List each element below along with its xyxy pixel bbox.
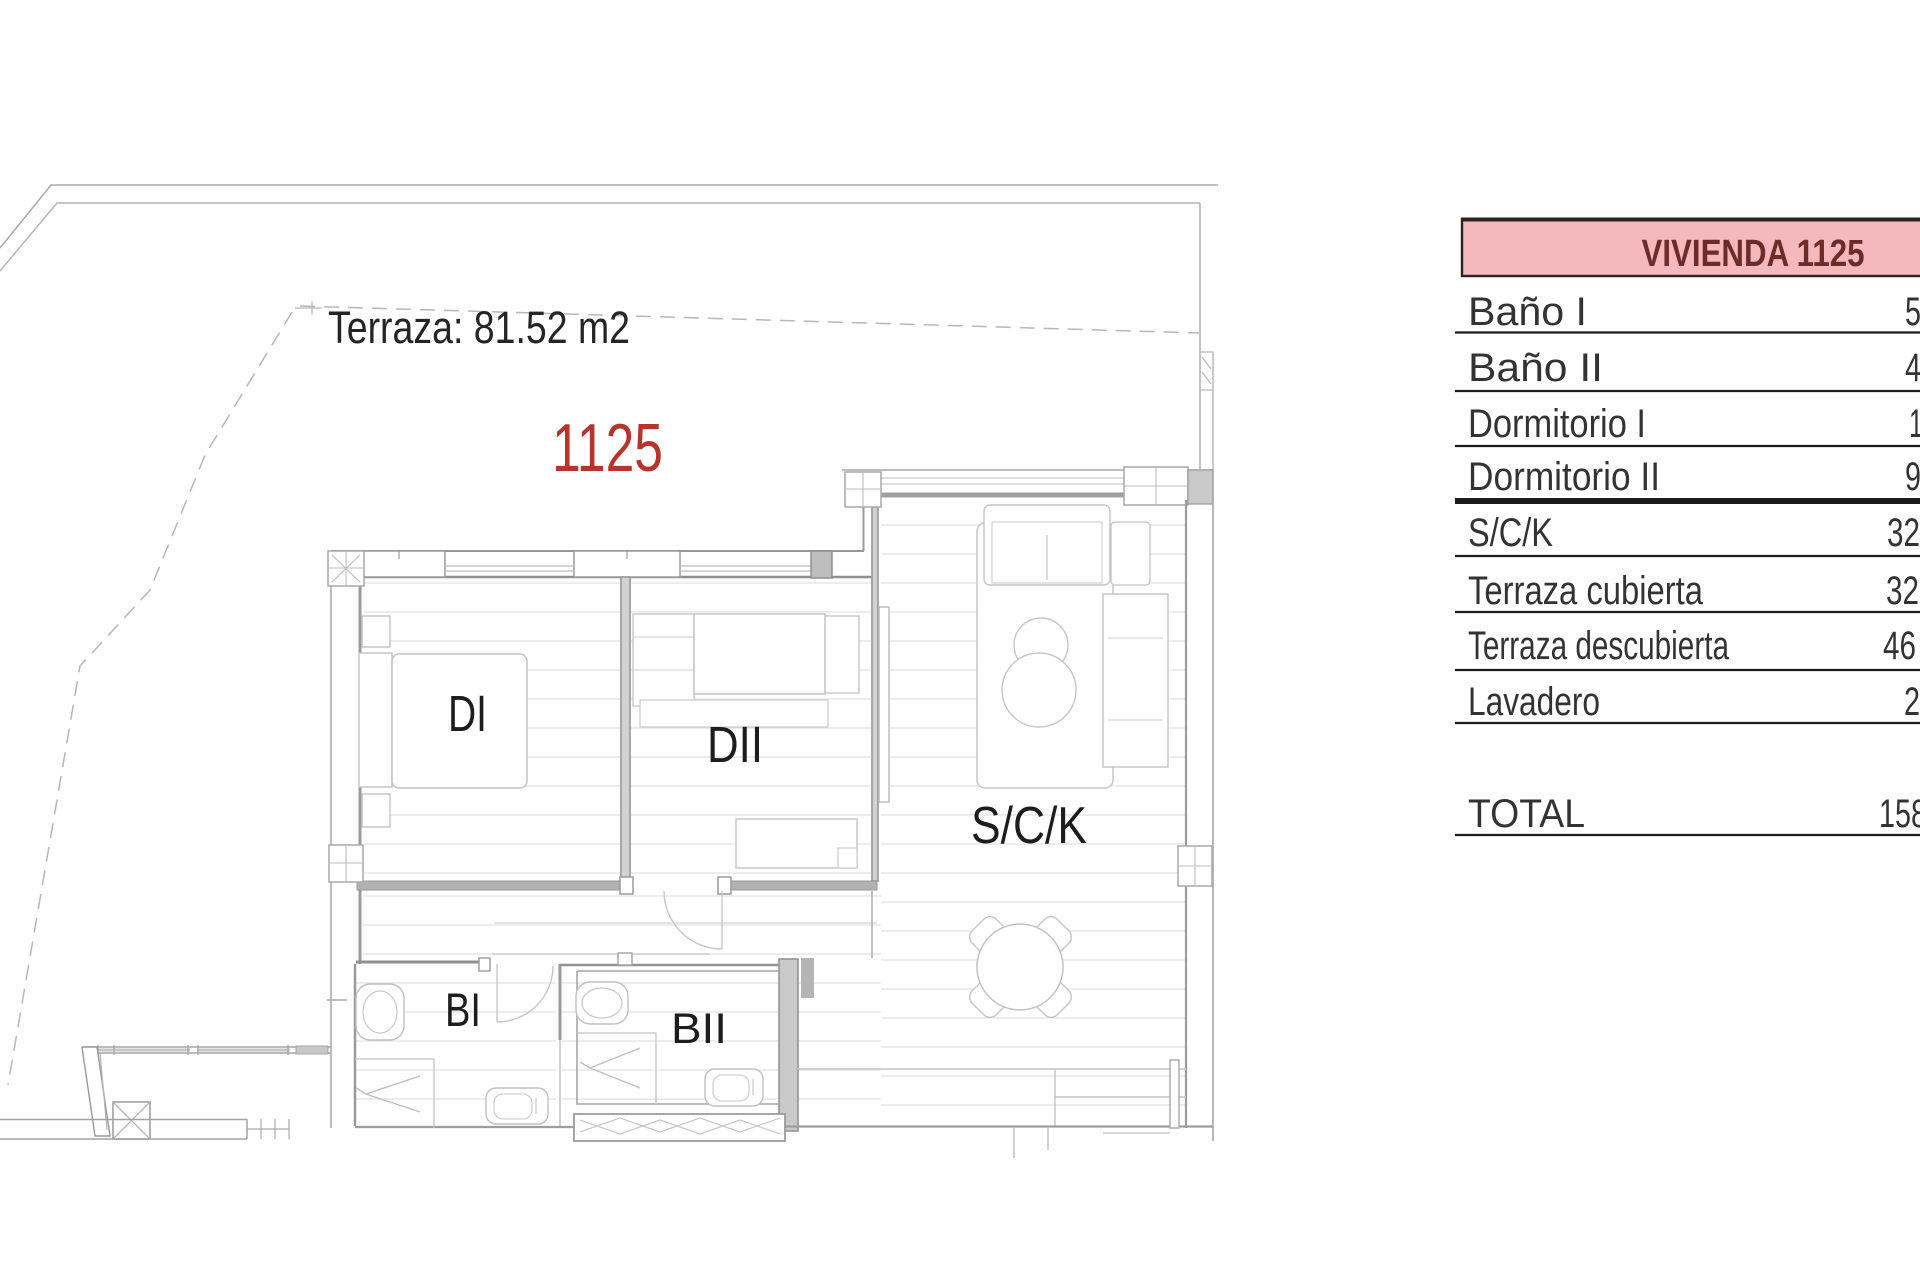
svg-text:DI: DI — [448, 685, 487, 742]
svg-text:9: 9 — [1905, 455, 1920, 499]
svg-text:1: 1 — [1909, 402, 1920, 446]
svg-text:5: 5 — [1905, 290, 1920, 334]
svg-text:Dormitorio I: Dormitorio I — [1468, 402, 1646, 446]
svg-text:S/C/K: S/C/K — [1468, 511, 1553, 555]
svg-text:DII: DII — [707, 716, 763, 773]
svg-text:Baño I: Baño I — [1468, 290, 1587, 334]
svg-text:32: 32 — [1887, 511, 1920, 555]
svg-text:S/C/K: S/C/K — [971, 797, 1087, 855]
svg-text:Lavadero: Lavadero — [1468, 680, 1600, 724]
svg-text:TOTAL: TOTAL — [1468, 792, 1585, 836]
svg-text:2: 2 — [1904, 680, 1920, 724]
svg-text:Dormitorio II: Dormitorio II — [1468, 455, 1660, 499]
svg-text:1125: 1125 — [552, 410, 663, 486]
svg-text:Terraza: 81.52 m2: Terraza: 81.52 m2 — [328, 302, 630, 353]
svg-text:Terraza cubierta: Terraza cubierta — [1468, 569, 1704, 613]
svg-text:32: 32 — [1886, 569, 1919, 613]
svg-text:158: 158 — [1879, 792, 1920, 836]
svg-text:VIVIENDA 1125: VIVIENDA 1125 — [1642, 233, 1865, 275]
svg-text:4: 4 — [1905, 346, 1920, 390]
svg-text:46: 46 — [1883, 624, 1916, 668]
svg-text:BI: BI — [445, 983, 481, 1036]
svg-text:Terraza descubierta: Terraza descubierta — [1468, 624, 1730, 668]
svg-text:Baño II: Baño II — [1468, 346, 1603, 390]
svg-text:BII: BII — [671, 1005, 727, 1053]
